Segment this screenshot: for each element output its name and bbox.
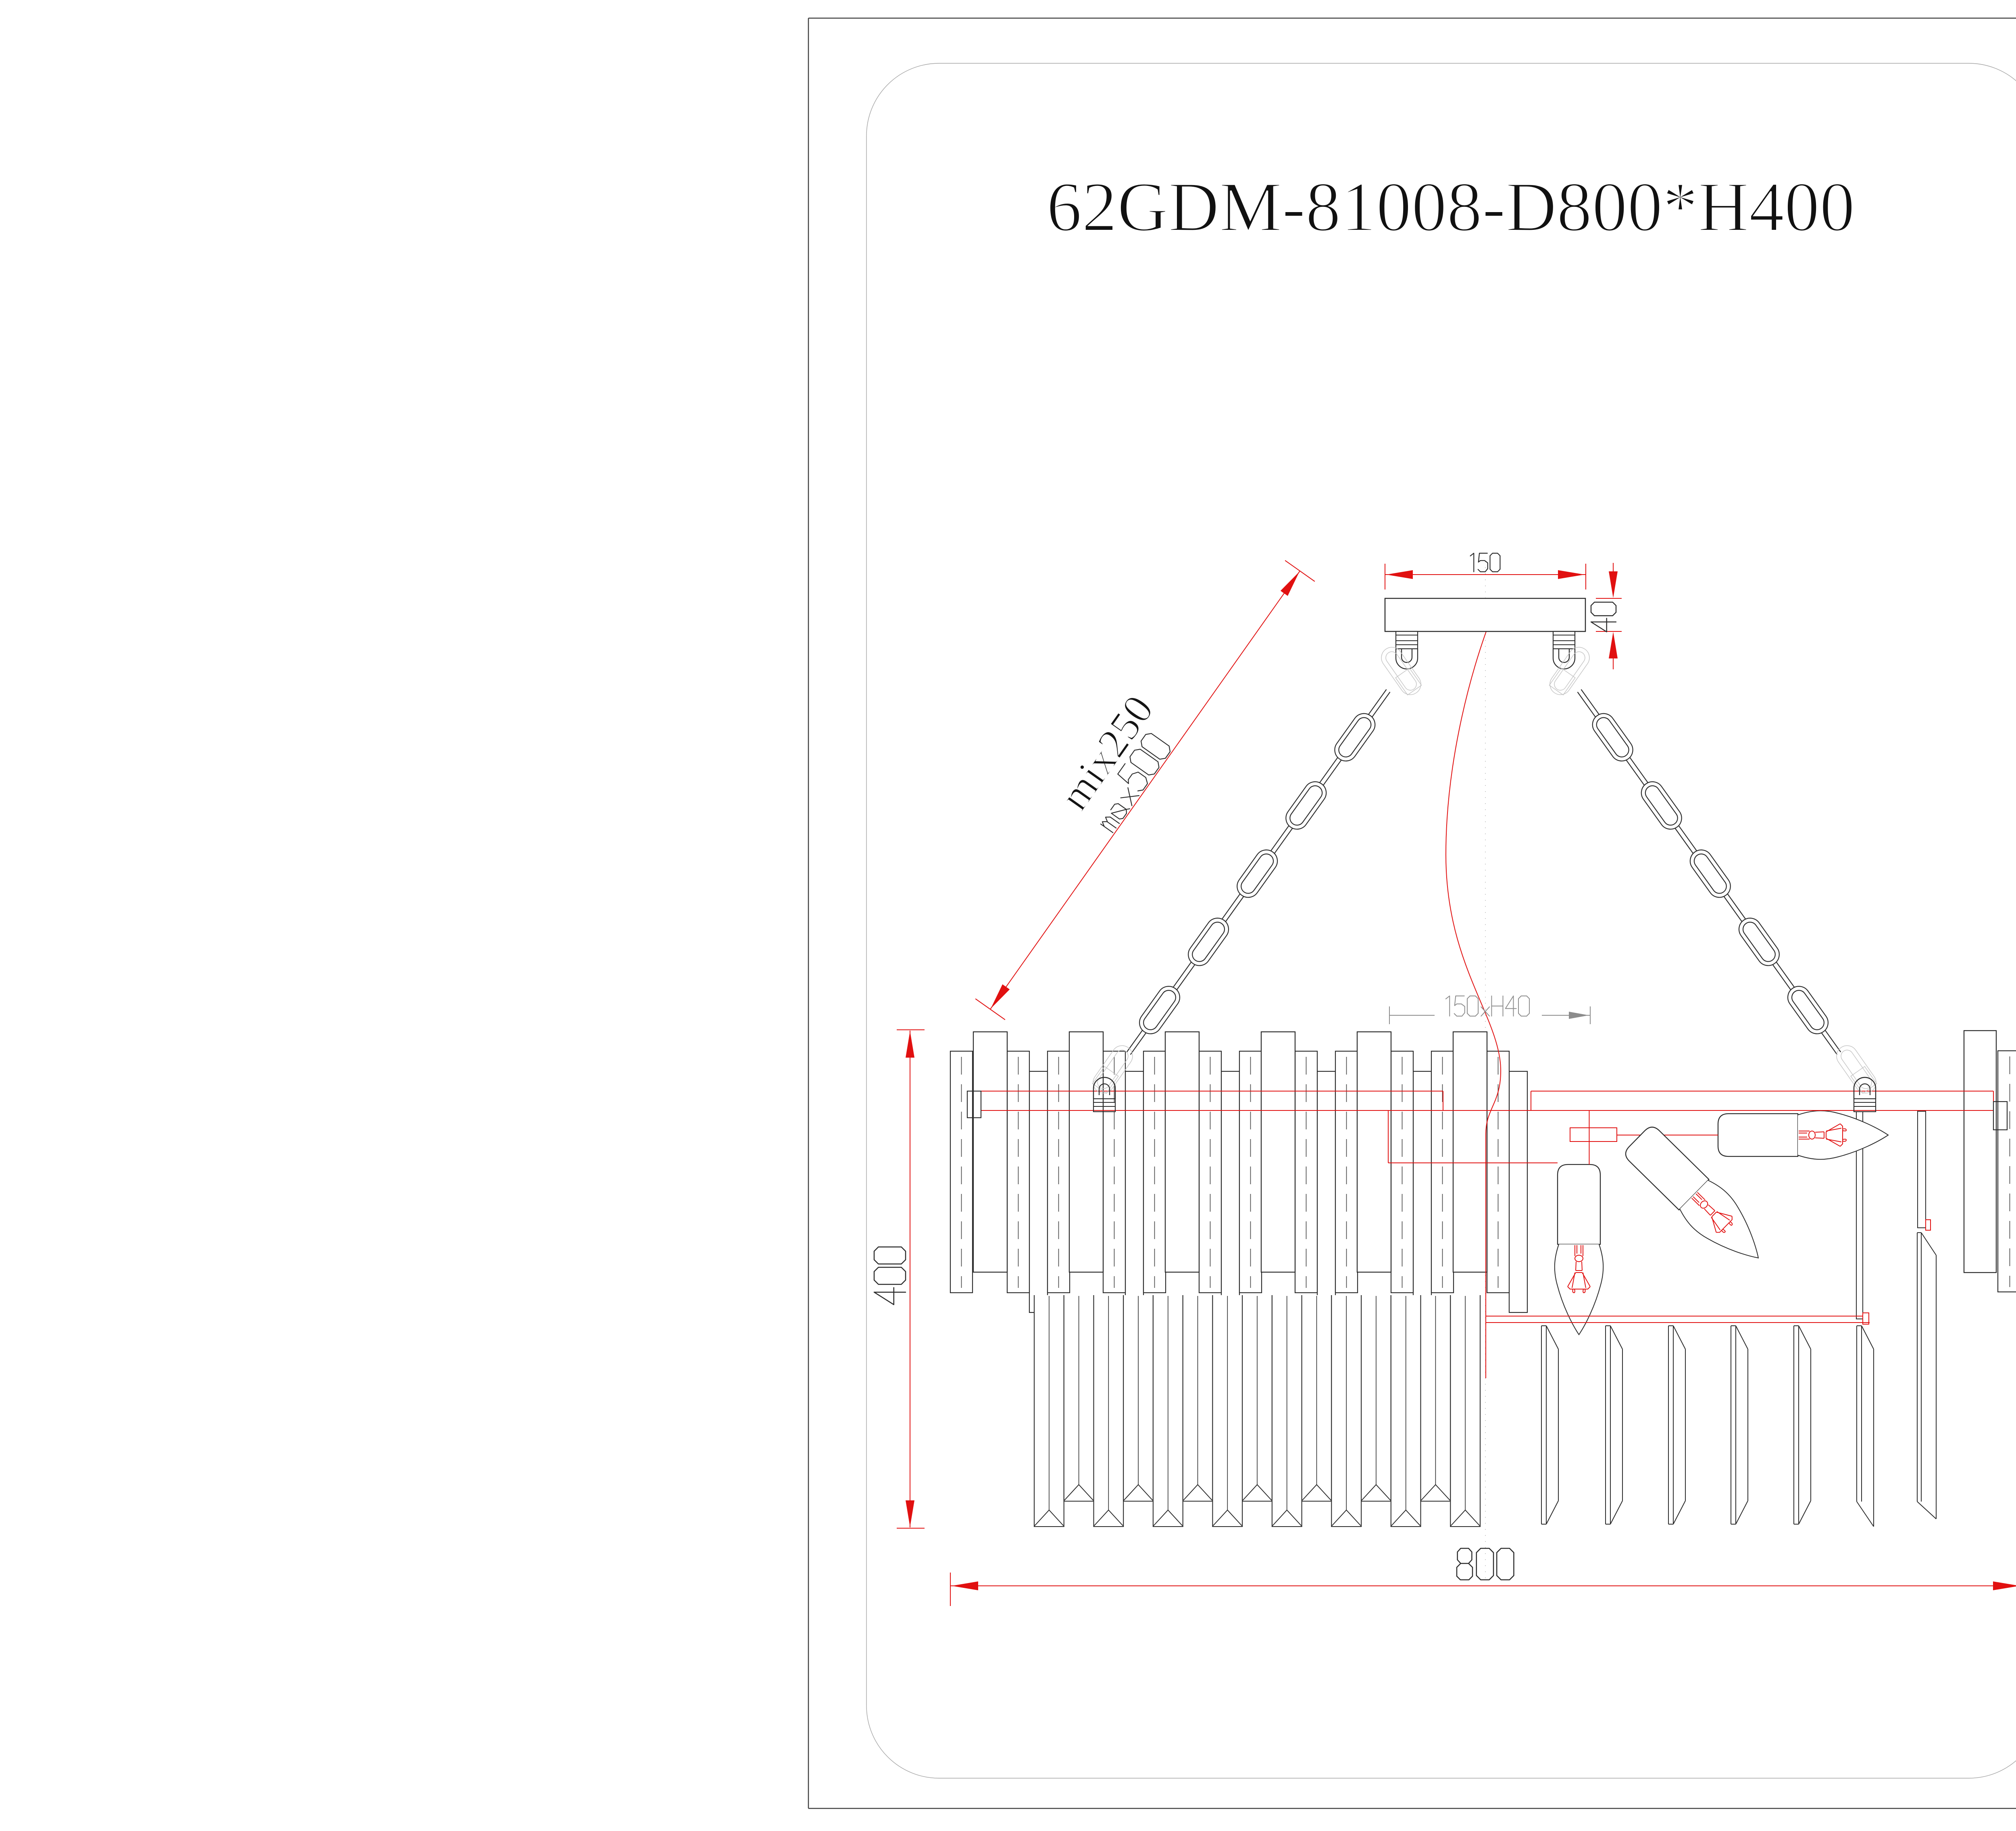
svg-text:62GDM-81008-D800*H400: 62GDM-81008-D800*H400 (1047, 168, 1855, 246)
